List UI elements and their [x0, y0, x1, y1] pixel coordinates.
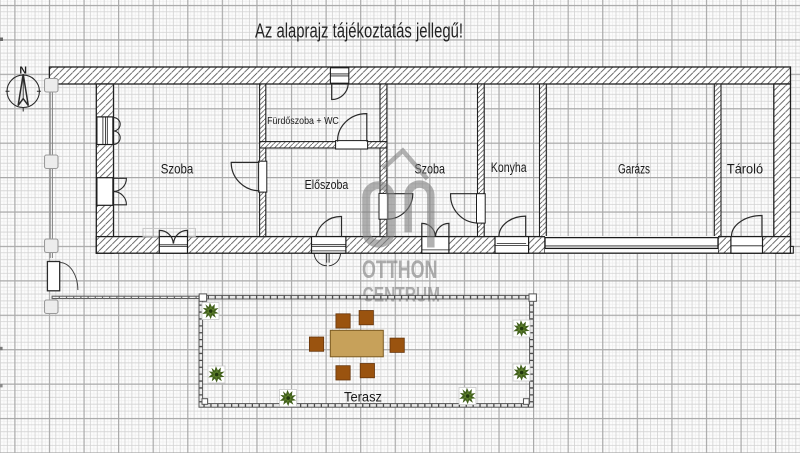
svg-text:Tároló: Tároló	[727, 162, 763, 177]
svg-text:Konyha: Konyha	[491, 160, 527, 175]
svg-text:Szoba: Szoba	[161, 161, 194, 177]
svg-text:CENTRUM: CENTRUM	[363, 283, 440, 307]
svg-text:N: N	[19, 65, 27, 77]
svg-text:Garázs: Garázs	[618, 162, 650, 177]
svg-text:Terasz: Terasz	[344, 390, 382, 405]
svg-text:Fürdőszoba + WC: Fürdőszoba + WC	[267, 116, 339, 127]
svg-text:Előszoba: Előszoba	[305, 177, 349, 192]
svg-text:OTTHON: OTTHON	[362, 256, 438, 284]
svg-text:Az alaprajz tájékoztatás jelle: Az alaprajz tájékoztatás jellegű!	[255, 19, 463, 42]
